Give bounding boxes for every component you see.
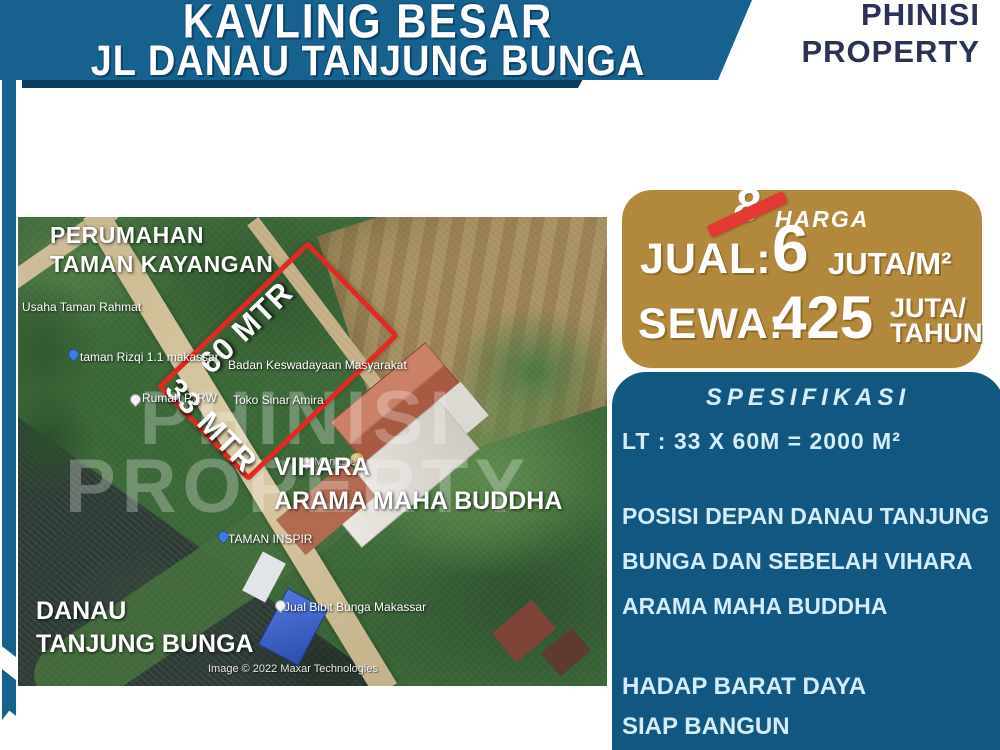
- vihara-label-line-2: ARAMA MAHA BUDDHA: [274, 484, 562, 518]
- poi-label: Rumah P. RW: [142, 391, 217, 405]
- property-flyer: KAVLING BESAR JL DANAU TANJUNG BUNGA PHI…: [0, 0, 1000, 750]
- rent-unit-line-2: TAHUN: [890, 321, 982, 346]
- title-line-2: JL DANAU TANJUNG BUNGA: [5, 38, 731, 86]
- area-label-line-1: PERUMAHAN: [50, 221, 273, 250]
- poi-label: Badan Keswadayaan Masyarakat: [228, 358, 407, 372]
- sale-label: JUAL:: [640, 235, 772, 284]
- position-line-1: POSISI DEPAN DANAU TANJUNG: [622, 503, 989, 530]
- spec-heading: SPESIFIKASI: [612, 384, 1000, 412]
- rent-label: SEWA:: [638, 300, 784, 349]
- left-accent-stripe: [2, 78, 16, 750]
- poi-label: Jual Bibit Bunga Makassar: [284, 600, 426, 614]
- poi-label: TAMAN INSPIR: [228, 532, 312, 546]
- poi-label: Toko Sinar Amira: [233, 393, 324, 407]
- sale-unit: JUTA/M²: [828, 246, 951, 282]
- brand-line-2: PROPERTY: [760, 33, 980, 70]
- facing-direction: HADAP BARAT DAYA: [622, 673, 866, 701]
- rent-price: 425: [773, 290, 873, 346]
- area-label: PERUMAHAN TAMAN KAYANGAN: [50, 221, 273, 279]
- lake-label-line-2: TANJUNG BUNGA: [36, 628, 254, 661]
- stripe-cut: [2, 711, 16, 750]
- price-card: 8 HARGA JUAL: 6 JUTA/M² SEWA: 425 JUTA/ …: [622, 190, 982, 368]
- brand-line-1: PHINISI: [760, 0, 980, 33]
- stripe-cut: [2, 641, 16, 692]
- build-condition: SIAP BANGUN: [622, 713, 790, 741]
- brand-logo: PHINISI PROPERTY: [760, 0, 980, 70]
- vihara-label: VIHARA ARAMA MAHA BUDDHA: [274, 450, 562, 518]
- page-title: KAVLING BESAR JL DANAU TANJUNG BUNGA: [5, 0, 731, 81]
- position-line-2: BUNGA DAN SEBELAH VIHARA: [622, 548, 973, 575]
- map-attribution: Image © 2022 Maxar Technologies: [208, 663, 378, 675]
- sale-price: 6: [772, 218, 809, 278]
- poi-label: Usaha Taman Rahmat: [22, 300, 141, 314]
- position-line-3: ARAMA MAHA BUDDHA: [622, 593, 887, 620]
- rent-unit: JUTA/ TAHUN: [890, 296, 982, 346]
- spec-panel: SPESIFIKASI LT : 33 X 60M = 2000 M² POSI…: [612, 372, 1000, 750]
- poi-label: taman Rizqi 1.1 makassar: [80, 350, 219, 364]
- satellite-map: PHINISI PROPERTY 60 MTR 33 MTR Usaha Tam…: [18, 217, 607, 686]
- land-size: LT : 33 X 60M = 2000 M²: [622, 428, 901, 455]
- area-label-line-2: TAMAN KAYANGAN: [50, 250, 273, 279]
- lake-label-line-1: DANAU: [36, 595, 254, 628]
- vihara-label-line-1: VIHARA: [274, 450, 562, 484]
- lake-label: DANAU TANJUNG BUNGA: [36, 595, 254, 661]
